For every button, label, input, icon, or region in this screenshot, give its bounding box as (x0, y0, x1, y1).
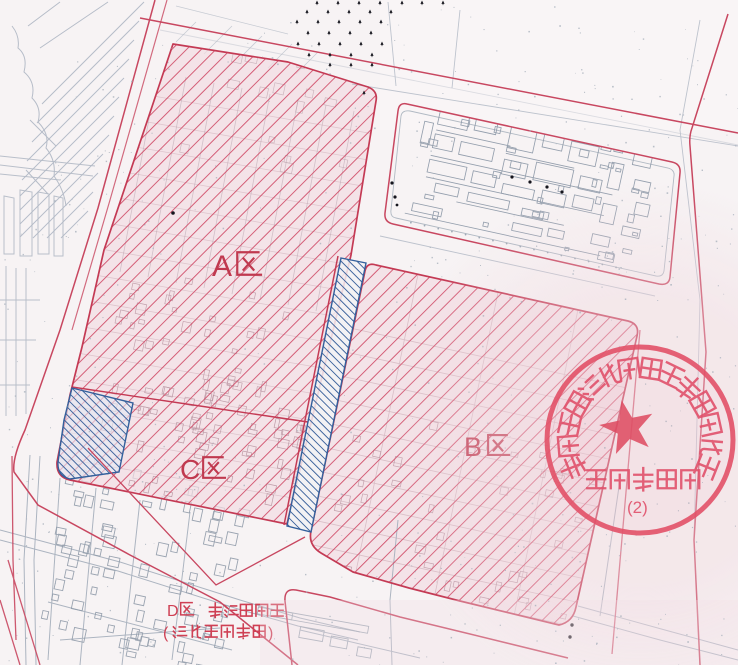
svg-text:(: ( (163, 625, 169, 642)
svg-text:A: A (212, 250, 232, 283)
svg-text:D: D (167, 603, 179, 620)
svg-text:C: C (180, 454, 200, 485)
svg-text:(2): (2) (627, 498, 648, 517)
